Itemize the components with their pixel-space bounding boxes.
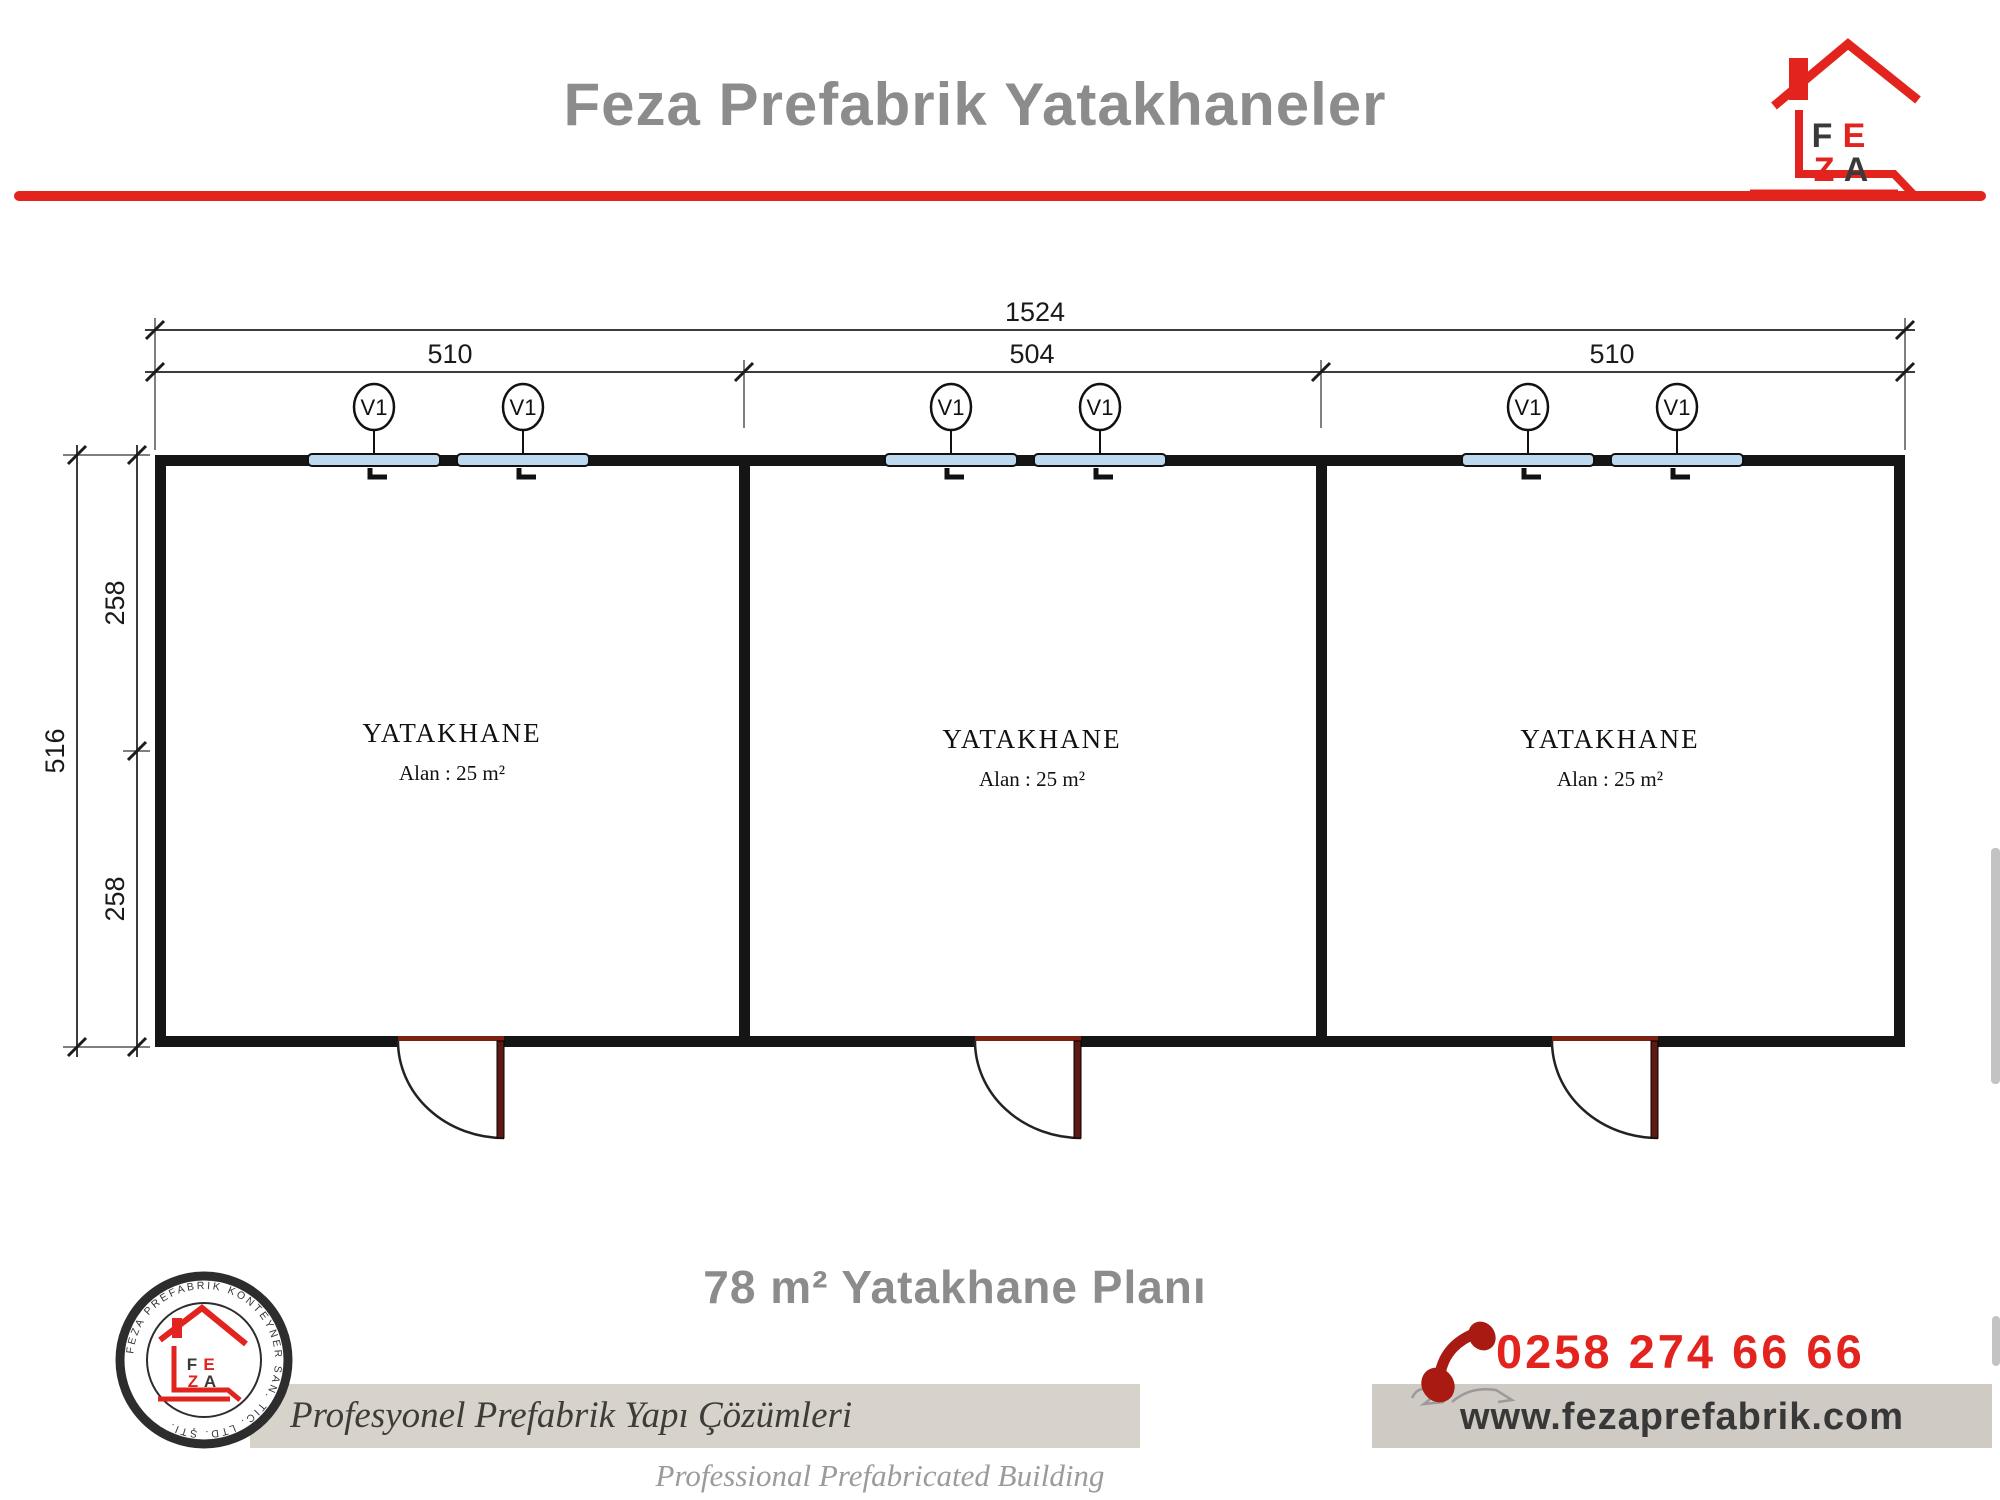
website-url: www.fezaprefabrik.com: [1372, 1396, 1992, 1439]
company-seal: FEZA PREFABRİK KONTEYNER SAN. TİC. LTD. …: [120, 1276, 288, 1444]
dim-height-seg-1: 258: [100, 580, 130, 625]
window-tag-v1: V1: [1515, 395, 1542, 420]
room-name: YATAKHANE: [1520, 724, 1699, 754]
window-symbol: [1034, 454, 1166, 466]
dimension-lines: [77, 330, 1915, 1057]
logo-letter-z: Z: [1814, 151, 1835, 189]
window-symbol: [1462, 454, 1594, 466]
window-tag-v1: V1: [361, 395, 388, 420]
tag-bubbles: [354, 384, 1697, 430]
tag-leader-lines: [374, 430, 1677, 455]
wall-partition-2: [1316, 455, 1327, 1047]
logo-letter-f: F: [1812, 117, 1833, 155]
extension-lines: [63, 318, 1905, 1047]
door-symbol: [975, 1036, 1081, 1138]
phone-number: 0258 274 66 66: [1496, 1324, 1865, 1379]
window-tags: V1 V1 V1 V1 V1 V1: [354, 384, 1697, 455]
dim-total-height: 516: [40, 728, 70, 773]
window-tag-v1: V1: [938, 395, 965, 420]
window-tag-v1: V1: [1664, 395, 1691, 420]
window-tag-v1: V1: [1087, 395, 1114, 420]
door-symbol: [398, 1036, 504, 1138]
wall-right: [1894, 455, 1905, 1047]
dim-segment-3: 510: [1589, 339, 1634, 369]
door-symbol: [1552, 1036, 1658, 1138]
dim-total-width: 1524: [1005, 297, 1065, 327]
room-labels: YATAKHANE Alan : 25 m² YATAKHANE Alan : …: [362, 718, 1699, 791]
room-area: Alan : 25 m²: [399, 761, 505, 785]
dimension-labels: 1524 510 504 510 516 258 258: [40, 297, 1635, 922]
dim-segment-1: 510: [427, 339, 472, 369]
seal-letter-z: Z: [188, 1372, 198, 1391]
room-area: Alan : 25 m²: [1557, 767, 1663, 791]
logo-letter-e: E: [1843, 117, 1866, 155]
window-opening-marks: [370, 468, 1690, 477]
dimension-ticks: [68, 321, 1914, 1056]
window-symbol: [457, 454, 589, 466]
tagline-english: Professional Prefabricated Building Solu…: [600, 1458, 1160, 1500]
dim-segment-2: 504: [1009, 339, 1054, 369]
window-symbol: [308, 454, 440, 466]
plan-caption: 78 m² Yatakhane Planı: [455, 1260, 1455, 1314]
logo-letter-a: A: [1844, 151, 1869, 189]
wall-left: [155, 455, 166, 1047]
right-edge-strip: [1991, 848, 2000, 1084]
brochure-page: Feza Prefabrik Yatakhaneler F E Z A: [0, 0, 2000, 1500]
wall-partition-1: [739, 455, 750, 1047]
window-symbol: [885, 454, 1017, 466]
room-name: YATAKHANE: [362, 718, 541, 748]
feza-house-logo: F E Z A: [1750, 44, 1918, 197]
room-area: Alan : 25 m²: [979, 767, 1085, 791]
dim-height-seg-2: 258: [100, 876, 130, 921]
tag-texts: V1 V1 V1 V1 V1 V1: [361, 395, 1691, 420]
room-name: YATAKHANE: [942, 724, 1121, 754]
door-symbols: [398, 1036, 1658, 1138]
window-tag-v1: V1: [510, 395, 537, 420]
seal-letter-a: A: [204, 1372, 216, 1391]
right-edge-strip: [1992, 1316, 2000, 1366]
tagline-turkish: Profesyonel Prefabrik Yapı Çözümleri: [290, 1394, 852, 1437]
window-symbol: [1611, 454, 1743, 466]
